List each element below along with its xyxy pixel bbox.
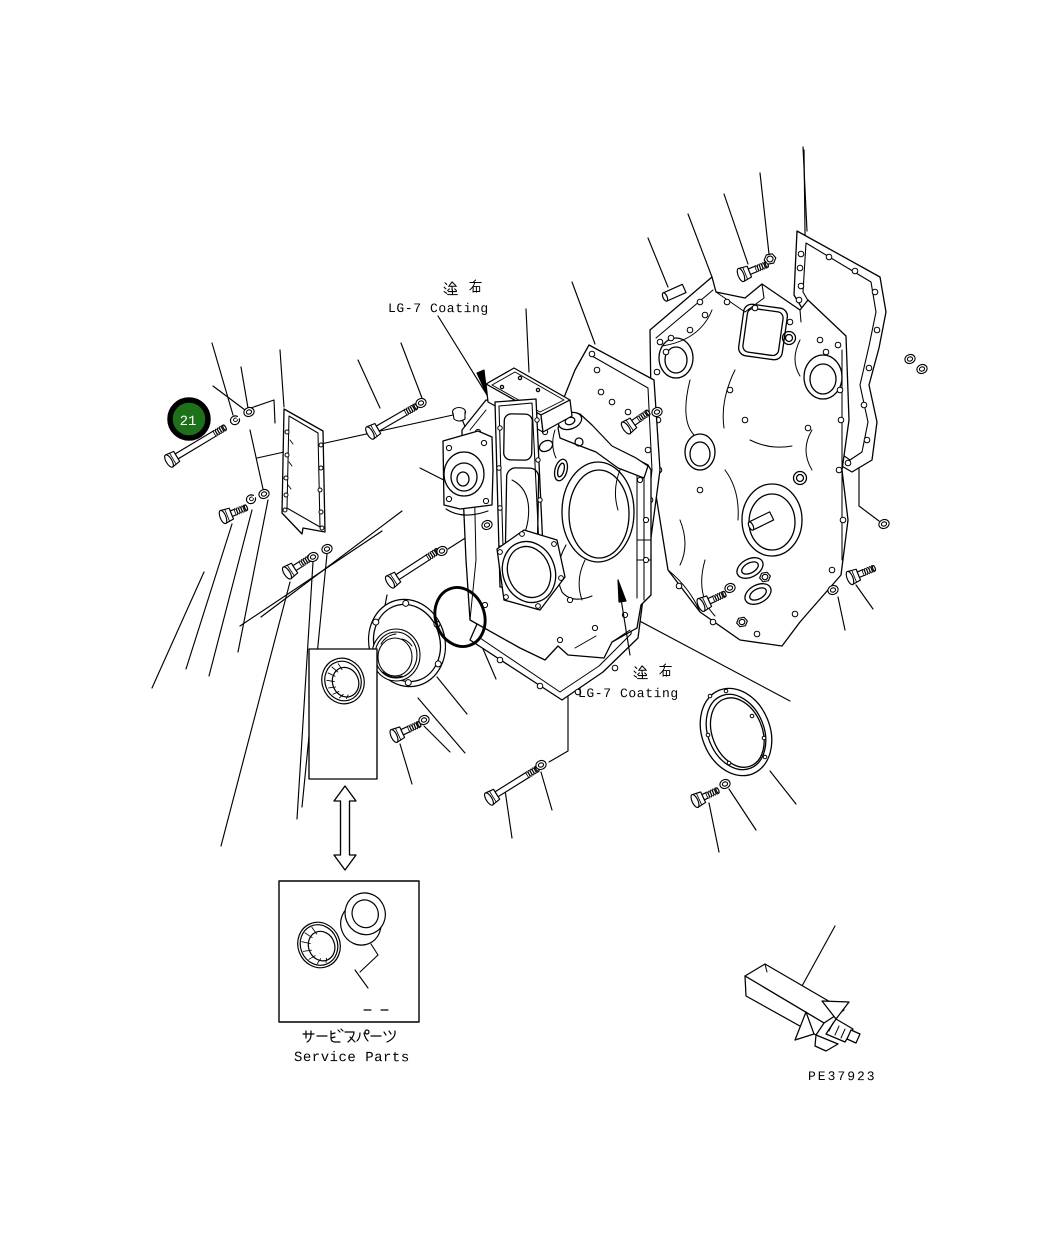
svg-text:LG-7 Coating: LG-7 Coating	[578, 686, 679, 701]
svg-text:Service Parts: Service Parts	[294, 1050, 410, 1066]
svg-text:LG-7 Coating: LG-7 Coating	[388, 301, 489, 316]
svg-text:21: 21	[180, 414, 197, 430]
svg-text:PE37923: PE37923	[808, 1069, 877, 1084]
